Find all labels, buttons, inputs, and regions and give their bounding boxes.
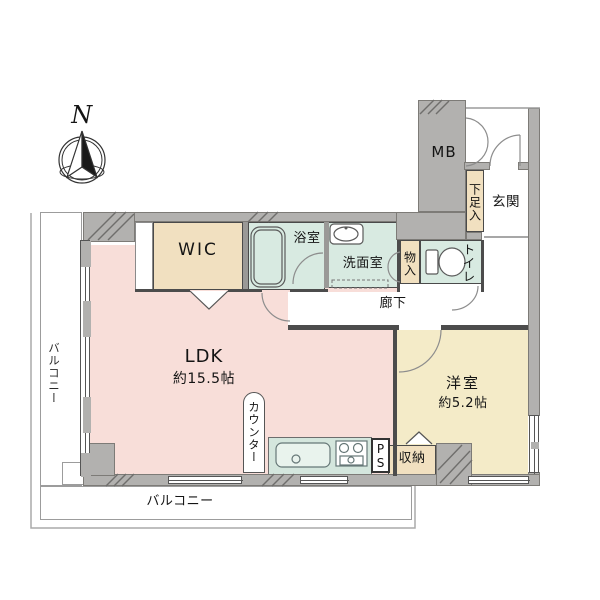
washbasin-icon [330, 224, 363, 244]
stove-icon [336, 441, 367, 466]
washer-pan-icon [332, 280, 388, 288]
western-room-name: 洋室 [405, 374, 521, 393]
floorplan: N MB 下足入 玄関 WIC 浴室 洗面室 物入 トイレ 廊下 バルコニー L… [0, 0, 600, 600]
bath-door-arc [293, 253, 323, 284]
storage-folding-door-icon [406, 432, 432, 444]
floorplan-annotations [0, 0, 600, 600]
entrance-label: 玄関 [484, 194, 528, 211]
compass-icon [59, 131, 105, 183]
shoe-box-label: 下足入 [466, 173, 484, 231]
entry-door-arc [490, 135, 520, 166]
toilet-label: トイレ [458, 241, 478, 285]
ldk-name: LDK [144, 346, 264, 369]
wall-hatching [88, 100, 472, 486]
western-room-label: 洋室 約5.2帖 [405, 374, 521, 412]
bath-label: 浴室 [286, 231, 328, 247]
washroom-label: 洗面室 [331, 256, 395, 272]
wic-folding-door-icon [190, 291, 228, 309]
counter-label: カウンター [243, 396, 265, 468]
balcony-bottom-label: バルコニー [132, 494, 228, 510]
mb-door-upper [466, 118, 488, 142]
western-door-arc [399, 330, 441, 372]
hallway-label: 廊下 [370, 296, 416, 312]
ldk-label: LDK 約15.5帖 [144, 346, 264, 388]
wic-label: WIC [153, 240, 243, 261]
mb-label: MB [426, 143, 462, 162]
western-room-size: 約5.2帖 [405, 396, 521, 412]
bathtub-icon [251, 227, 285, 287]
toilet-door-arc [452, 286, 478, 310]
ldk-size: 約15.5帖 [144, 371, 264, 389]
ldk-door-arc [262, 293, 290, 321]
small-closet-label: 物入 [401, 247, 419, 281]
storage-label: 収納 [388, 451, 436, 467]
balcony-left-label: バルコニー [46, 336, 62, 410]
compass-north-label: N [64, 100, 100, 130]
kitchen-sink-icon [276, 443, 330, 467]
mb-door-lower [466, 142, 488, 166]
